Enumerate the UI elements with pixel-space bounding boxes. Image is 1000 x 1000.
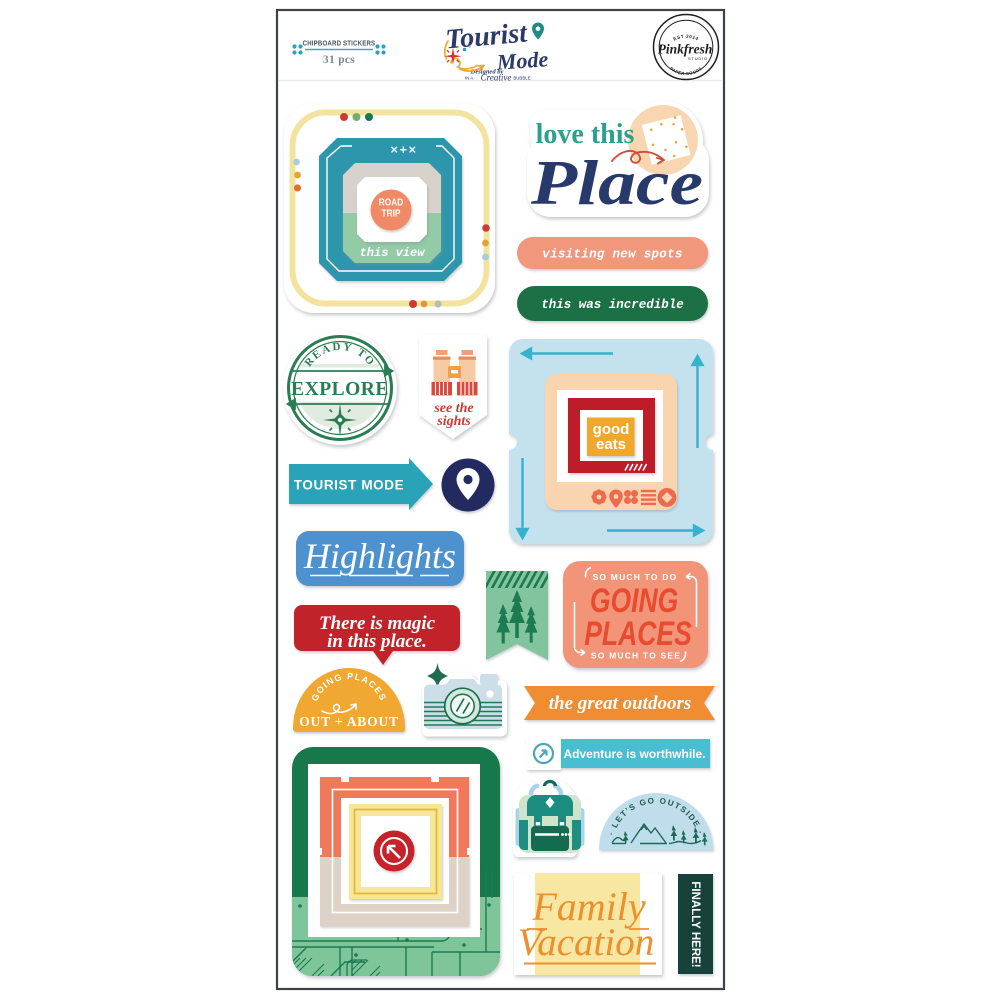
svg-text:Highlights: Highlights: [303, 536, 456, 576]
svg-text:visiting new spots: visiting new spots: [542, 248, 682, 262]
svg-text:Pinkfresh: Pinkfresh: [658, 42, 713, 57]
svg-text:FINALLY HERE!: FINALLY HERE!: [689, 881, 701, 967]
svg-text:OUT + ABOUT: OUT + ABOUT: [299, 714, 399, 729]
svg-text:Adventure is worthwhile.: Adventure is worthwhile.: [563, 747, 705, 761]
svg-text:this was incredible: this was incredible: [541, 298, 684, 312]
svg-text:Creative: Creative: [481, 73, 512, 83]
svg-text:eats: eats: [596, 436, 626, 453]
svg-text:TOURIST MODE: TOURIST MODE: [294, 478, 404, 493]
svg-text:STUDIO: STUDIO: [688, 56, 708, 61]
svg-text:Place: Place: [530, 147, 703, 218]
svg-text:TRIP: TRIP: [382, 208, 401, 219]
svg-text:PLACES: PLACES: [584, 615, 692, 653]
svg-text:ROAD: ROAD: [379, 197, 404, 208]
svg-text:EXPLORE: EXPLORE: [291, 379, 389, 400]
svg-text:CHIPBOARD STICKERS: CHIPBOARD STICKERS: [303, 40, 376, 48]
svg-text:sights: sights: [436, 414, 471, 429]
svg-text:31 pcs: 31 pcs: [323, 54, 355, 66]
svg-text:Vacation: Vacation: [518, 921, 654, 964]
svg-text:BUBBLE: BUBBLE: [513, 76, 530, 81]
svg-text:love this: love this: [536, 119, 635, 150]
svg-text:in this place.: in this place.: [327, 631, 427, 652]
svg-text:the great outdoors: the great outdoors: [549, 693, 692, 714]
svg-text:IN A: IN A: [465, 76, 473, 81]
svg-text:SO MUCH TO DO: SO MUCH TO DO: [593, 572, 678, 582]
svg-text:this view: this view: [360, 246, 426, 260]
svg-text:×+×: ×+×: [390, 142, 417, 157]
